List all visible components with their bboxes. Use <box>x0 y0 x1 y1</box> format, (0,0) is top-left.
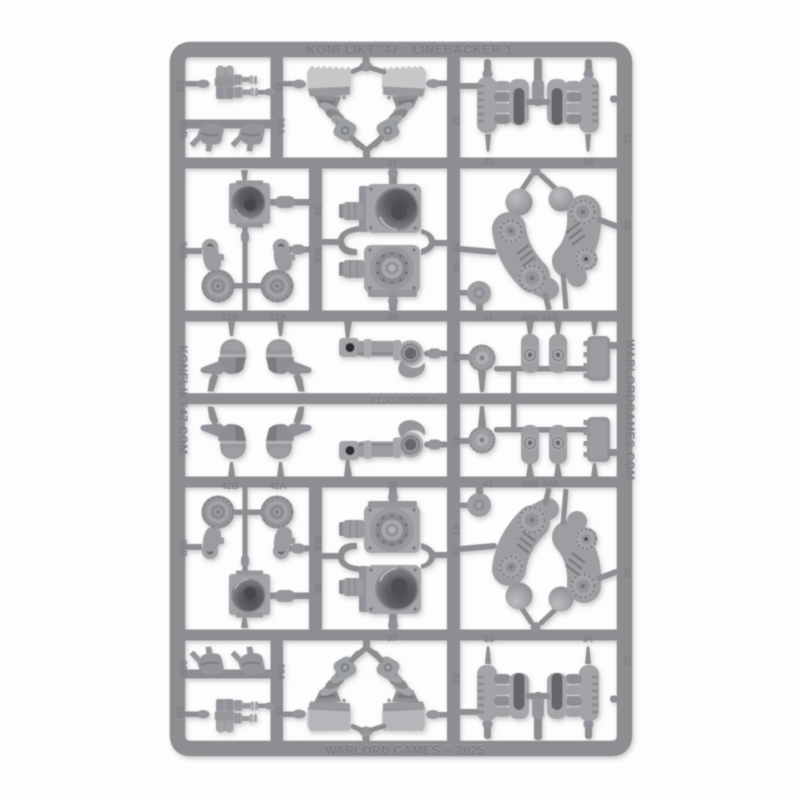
svg-text:39: 39 <box>450 242 461 253</box>
svg-text:30A: 30A <box>275 117 286 135</box>
svg-text:34: 34 <box>583 157 594 168</box>
svg-text:42B: 42B <box>221 481 239 492</box>
svg-text:42B: 42B <box>221 312 239 323</box>
svg-text:31: 31 <box>273 82 284 93</box>
svg-text:2B: 2B <box>174 706 185 719</box>
svg-text:40: 40 <box>621 567 632 579</box>
svg-text:41: 41 <box>483 313 494 324</box>
svg-text:42A: 42A <box>269 312 287 323</box>
svg-text:30B: 30B <box>177 120 188 138</box>
svg-text:35: 35 <box>312 205 323 216</box>
svg-text:KONFLIKT '47 : LINEBACKER 1: KONFLIKT '47 : LINEBACKER 1 <box>307 42 514 56</box>
svg-text:43: 43 <box>450 352 461 363</box>
svg-text:41: 41 <box>450 525 461 536</box>
svg-text:WARLORD GAMES ® 2025: WARLORD GAMES ® 2025 <box>325 743 485 757</box>
svg-text:30B: 30B <box>177 660 188 678</box>
svg-text:44B 44A: 44B 44A <box>521 479 559 490</box>
svg-text:36A: 36A <box>312 246 323 264</box>
svg-text:30A: 30A <box>275 663 286 681</box>
svg-text:39: 39 <box>450 546 461 557</box>
svg-text:41: 41 <box>483 479 494 490</box>
svg-text:36B: 36B <box>177 241 188 259</box>
svg-text:31: 31 <box>273 706 284 717</box>
svg-text:32: 32 <box>621 132 632 144</box>
svg-text:37: 37 <box>387 158 398 169</box>
svg-text:WARLORDGAMES.COM: WARLORDGAMES.COM <box>623 339 635 480</box>
svg-text:33: 33 <box>484 157 495 168</box>
svg-text:KONFLIKT47.COM: KONFLIKT47.COM <box>176 345 188 454</box>
svg-text:38: 38 <box>387 312 398 323</box>
svg-text:43: 43 <box>450 436 461 447</box>
svg-text:36A: 36A <box>312 534 323 552</box>
svg-text:36B: 36B <box>177 539 188 557</box>
svg-text:2B: 2B <box>174 80 185 93</box>
svg-text:35: 35 <box>312 583 323 594</box>
svg-text:32: 32 <box>450 115 461 126</box>
svg-text:32: 32 <box>621 654 632 666</box>
svg-text:34: 34 <box>583 634 594 645</box>
svg-text:4130200002: 4130200002 <box>369 394 435 406</box>
svg-text:40: 40 <box>621 219 632 231</box>
svg-text:37: 37 <box>387 633 398 644</box>
svg-text:38: 38 <box>387 480 398 491</box>
svg-text:42A: 42A <box>269 481 287 492</box>
svg-text:44B 44A: 44B 44A <box>521 313 559 324</box>
svg-text:41: 41 <box>450 263 461 274</box>
svg-text:32: 32 <box>450 673 461 684</box>
svg-text:33: 33 <box>484 634 495 645</box>
